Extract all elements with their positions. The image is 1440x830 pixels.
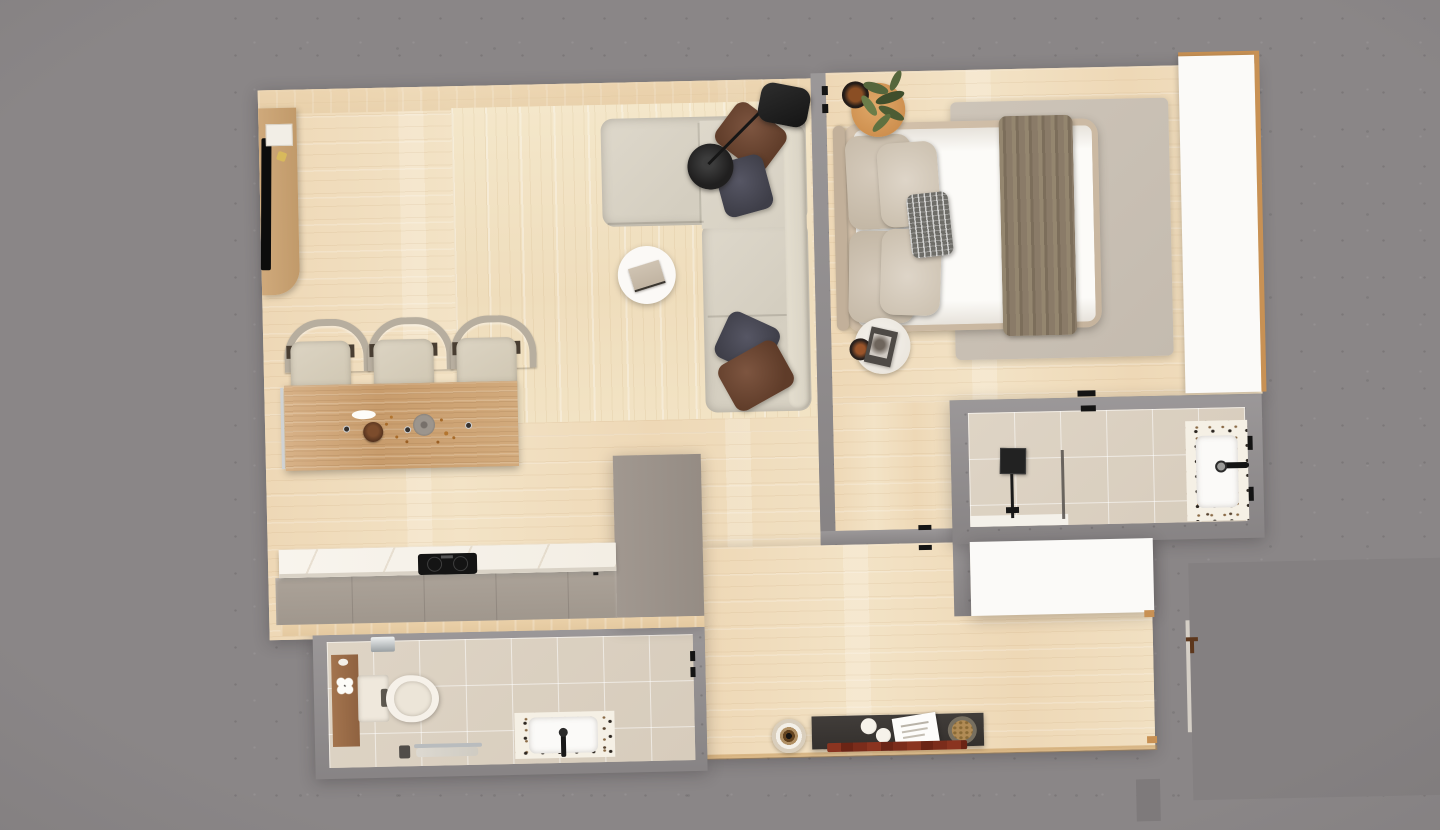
bath-wood-mat [331, 654, 360, 747]
door-jamb-mark [1077, 390, 1095, 396]
storage-unit [970, 538, 1155, 616]
crumb [436, 441, 439, 444]
crumb [440, 418, 443, 421]
tv [261, 138, 272, 270]
apartment-plan [0, 0, 1440, 830]
floorplan-render [0, 0, 1440, 830]
kitchen-base-cabinets [275, 571, 617, 625]
table-stud [405, 427, 410, 432]
door-jamb-mark [919, 545, 932, 550]
flower-decor-icon [336, 676, 354, 694]
shower-valve [1006, 507, 1019, 513]
crumb [405, 440, 408, 443]
entry-step [1136, 779, 1161, 822]
toilet-inlet-chrome [371, 637, 395, 653]
wall-bracket-mark [1247, 436, 1252, 450]
throw-blanket [998, 115, 1077, 337]
door-jamb-mark [822, 86, 828, 95]
door-jamb-mark [1081, 405, 1096, 411]
entry-landing [1188, 558, 1440, 801]
door-handle-icon [1190, 640, 1194, 653]
rain-shower-head-icon [1000, 448, 1026, 474]
crumb [452, 436, 455, 439]
dining-island [284, 381, 519, 471]
crumb [390, 416, 393, 419]
crumb [385, 423, 388, 426]
bath-accessory [399, 745, 410, 758]
door-jamb-mark [690, 651, 695, 661]
crumb [395, 435, 398, 438]
door-jamb-mark [822, 104, 828, 113]
speaker-box [265, 124, 292, 147]
wall-bracket-mark [1249, 487, 1254, 501]
table-stud [466, 423, 471, 428]
bedroom-wardrobe [1178, 55, 1261, 394]
shower-tray [970, 514, 1068, 527]
towel [416, 747, 478, 757]
wood-trim [1147, 736, 1157, 743]
cooktop-controls [441, 555, 453, 558]
door-jamb-mark [690, 667, 695, 677]
table-stud [344, 427, 349, 432]
bedroom-floor-nook [833, 400, 953, 531]
wood-trim [1144, 610, 1154, 617]
door-jamb-mark [918, 525, 931, 530]
crumb [444, 431, 448, 435]
kitchen-tall-cabinet [613, 454, 705, 625]
counter-speck [593, 572, 598, 575]
striped-cushion [905, 191, 954, 259]
